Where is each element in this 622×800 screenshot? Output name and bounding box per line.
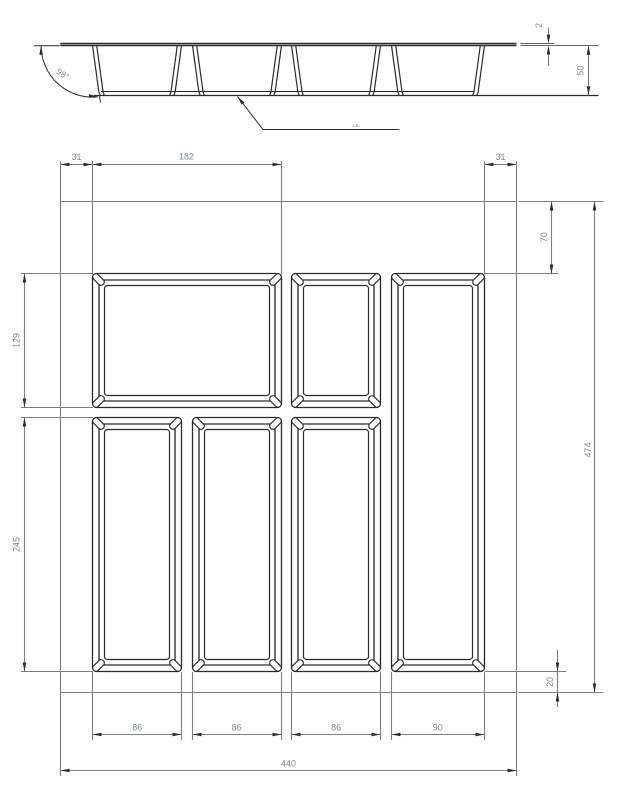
svg-text:440: 440 [281,758,296,768]
svg-text:245: 245 [11,537,21,552]
svg-text:20: 20 [545,677,555,687]
svg-text:31: 31 [71,152,81,162]
svg-text:474: 474 [583,442,593,457]
svg-text:1,5: 1,5 [352,123,359,128]
svg-text:90: 90 [433,722,443,732]
svg-text:2: 2 [534,23,544,28]
svg-text:182: 182 [179,152,194,162]
svg-text:70: 70 [539,232,549,242]
svg-text:50: 50 [576,66,586,76]
svg-text:98°: 98° [55,66,71,82]
svg-text:86: 86 [331,722,341,732]
svg-text:129: 129 [11,333,21,348]
svg-text:86: 86 [232,722,242,732]
svg-text:86: 86 [132,722,142,732]
svg-text:31: 31 [495,152,505,162]
